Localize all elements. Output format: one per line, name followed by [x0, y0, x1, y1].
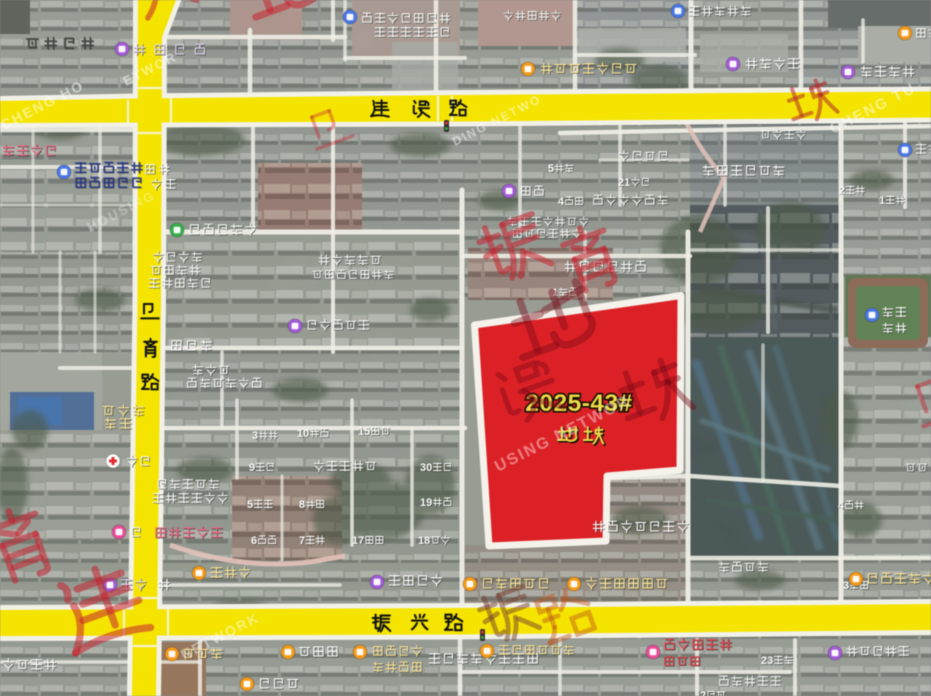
svg-text:30: 30 — [420, 462, 432, 474]
svg-text:2: 2 — [700, 690, 706, 696]
svg-text:19: 19 — [420, 497, 432, 509]
svg-text:7: 7 — [299, 535, 305, 547]
svg-text:3: 3 — [252, 430, 258, 442]
svg-text:4: 4 — [558, 196, 565, 208]
svg-text:10: 10 — [297, 428, 309, 440]
svg-text:5: 5 — [548, 163, 554, 175]
svg-text:3: 3 — [843, 580, 849, 592]
svg-text:15: 15 — [358, 426, 370, 438]
svg-text:18: 18 — [418, 535, 430, 547]
svg-text:23: 23 — [761, 655, 773, 667]
svg-text:4: 4 — [838, 500, 845, 512]
svg-text:17: 17 — [352, 535, 364, 547]
svg-text:9: 9 — [249, 462, 255, 474]
svg-text:21: 21 — [618, 177, 630, 189]
svg-text:8: 8 — [299, 499, 305, 511]
svg-text:2: 2 — [839, 185, 845, 197]
svg-text:5: 5 — [247, 499, 253, 511]
svg-text:1: 1 — [879, 195, 885, 207]
svg-text:6: 6 — [251, 535, 257, 547]
